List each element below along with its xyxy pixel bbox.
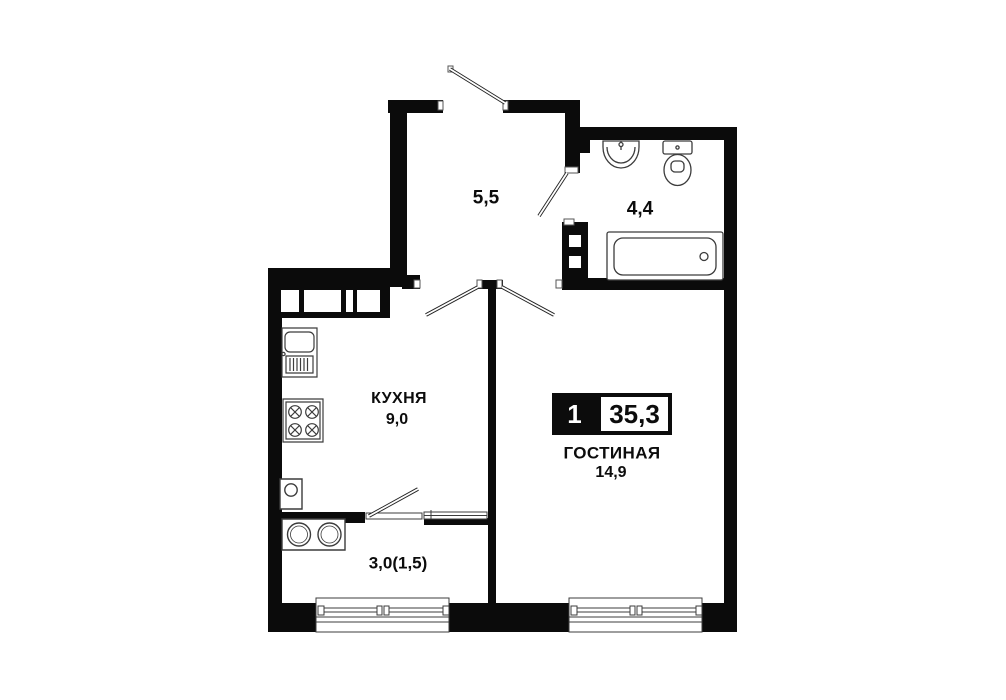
kitchen-area-label: 9,0 [386, 412, 408, 428]
living-room-window [569, 598, 702, 632]
vent-shaft-icon [275, 285, 390, 318]
washbasin-icon [603, 141, 639, 168]
towel-rail-icon [562, 219, 588, 287]
floor-plan: 5,5 4,4 КУХНЯ 9,0 1 35,3 ГОСТИНАЯ 14,9 3… [0, 0, 1006, 700]
stove-icon [283, 399, 323, 442]
washer-dryer-columns-icon [282, 519, 345, 550]
room-count-value: 1 [552, 393, 597, 435]
kitchen-name-label: КУХНЯ [371, 391, 427, 407]
balcony-door-swing [369, 489, 418, 516]
bathroom-door-swing [539, 173, 567, 216]
balcony-window [316, 598, 449, 632]
bathtub-icon [607, 232, 723, 280]
washing-machine-icon [280, 479, 302, 509]
living-room-door-swing [502, 287, 554, 315]
total-area-value: 35,3 [597, 393, 672, 435]
kitchen-door-swing [426, 287, 478, 315]
hallway-area-label: 5,5 [473, 189, 499, 208]
total-area-badge: 1 35,3 [552, 393, 672, 435]
floor-plan-svg [0, 0, 1006, 700]
balcony-door-threshold [366, 510, 487, 519]
entry-door-swing [450, 69, 505, 103]
kitchen-sink-icon [282, 328, 317, 377]
balcony-area-label: 3,0(1,5) [369, 555, 428, 572]
living-room-name-label: ГОСТИНАЯ [563, 445, 660, 462]
toilet-icon [663, 141, 692, 186]
bathroom-area-label: 4,4 [627, 200, 653, 219]
living-room-area-label: 14,9 [595, 465, 626, 481]
